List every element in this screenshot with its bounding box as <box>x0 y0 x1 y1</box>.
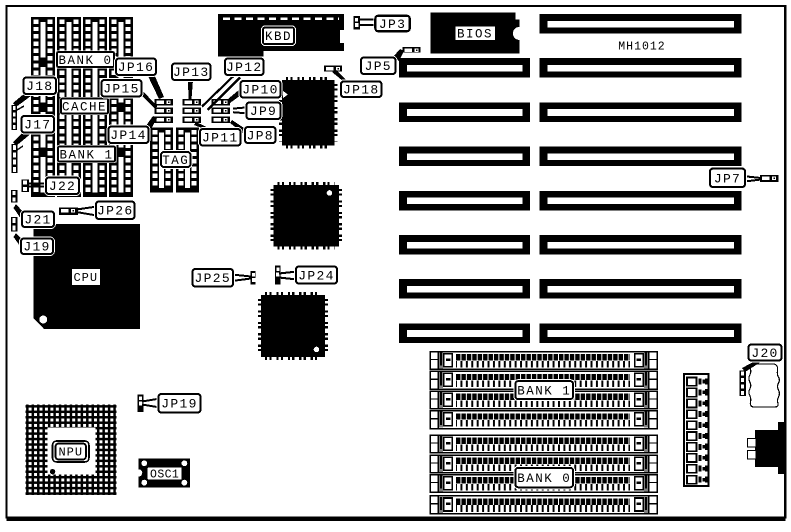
svg-text:J20: J20 <box>751 346 778 361</box>
svg-text:J17: J17 <box>24 118 51 133</box>
svg-text:JP9: JP9 <box>250 104 277 119</box>
svg-text:BANK 1: BANK 1 <box>517 384 571 398</box>
svg-text:CPU: CPU <box>73 271 98 285</box>
svg-text:JP18: JP18 <box>343 83 379 98</box>
svg-text:BANK 1: BANK 1 <box>59 148 113 162</box>
svg-text:JP26: JP26 <box>97 204 133 219</box>
svg-text:J18: J18 <box>26 79 53 94</box>
svg-text:JP5: JP5 <box>365 59 392 74</box>
svg-text:J22: J22 <box>49 179 76 194</box>
svg-text:J21: J21 <box>24 213 51 228</box>
svg-text:BANK 0: BANK 0 <box>517 472 571 486</box>
svg-text:JP8: JP8 <box>247 128 274 143</box>
svg-text:JP25: JP25 <box>195 271 231 286</box>
svg-text:MH1012: MH1012 <box>618 41 665 54</box>
svg-text:BIOS: BIOS <box>457 28 493 42</box>
svg-text:JP19: JP19 <box>161 397 197 412</box>
svg-text:JP12: JP12 <box>226 60 262 75</box>
svg-text:BANK 0: BANK 0 <box>58 54 112 68</box>
svg-text:JP11: JP11 <box>202 131 238 146</box>
svg-text:J19: J19 <box>23 240 50 255</box>
svg-text:JP14: JP14 <box>110 128 146 143</box>
svg-text:JP7: JP7 <box>714 171 741 186</box>
svg-text:CACHE: CACHE <box>62 100 107 114</box>
svg-text:JP3: JP3 <box>379 17 406 32</box>
svg-text:JP15: JP15 <box>103 82 139 97</box>
svg-text:JP24: JP24 <box>298 268 334 283</box>
svg-text:TAG: TAG <box>162 154 189 168</box>
svg-text:JP10: JP10 <box>242 83 278 98</box>
svg-text:OSC1: OSC1 <box>150 468 179 481</box>
svg-text:JP13: JP13 <box>173 65 209 80</box>
svg-text:KBD: KBD <box>265 30 292 44</box>
svg-text:NPU: NPU <box>58 446 83 460</box>
svg-text:JP16: JP16 <box>118 60 154 75</box>
